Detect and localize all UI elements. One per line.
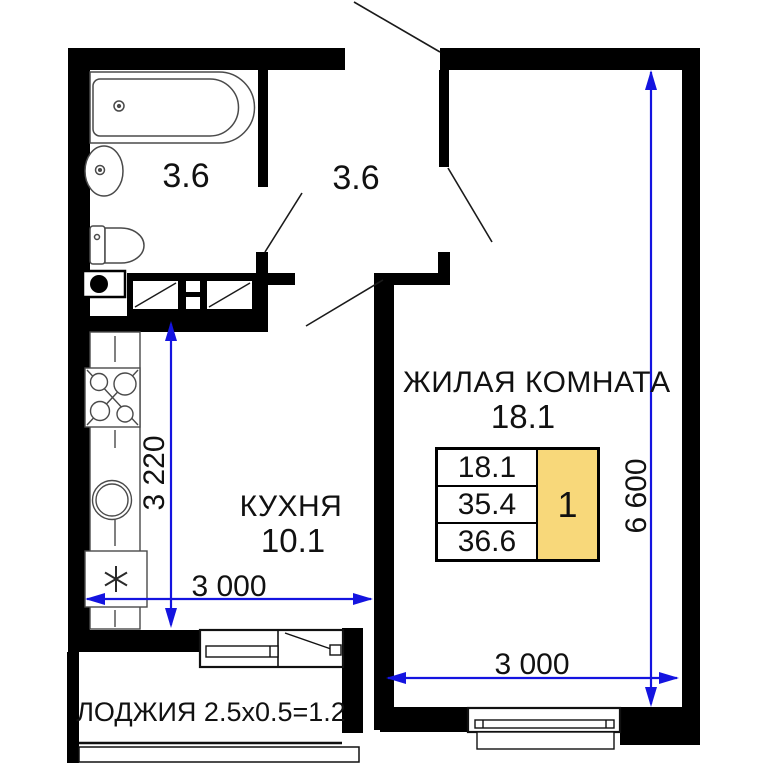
vent-shafts-icon xyxy=(133,281,252,309)
entrance-door-swing xyxy=(354,2,440,52)
kitchen-door-swing xyxy=(306,280,383,326)
total-area-cell: 36.6 xyxy=(438,524,536,559)
stove-icon xyxy=(85,368,140,427)
living-window xyxy=(468,708,620,749)
floor-plan: 3.6 3.6 ЖИЛАЯ КОМНАТА 18.1 КУХНЯ 10.1 ЛО… xyxy=(0,0,768,768)
dim-living-width: 3 000 xyxy=(462,648,602,678)
dim-kitchen-width: 3 000 xyxy=(159,570,299,600)
dim-kitchen-depth: 3 220 xyxy=(139,408,171,538)
kitchen-area-label: 10.1 xyxy=(233,522,353,556)
hallway-area-label: 3.6 xyxy=(316,159,396,199)
bathroom-door-swing xyxy=(265,193,302,252)
bathtub-icon xyxy=(90,72,255,143)
washbasin-icon xyxy=(85,146,123,196)
toilet-icon xyxy=(90,226,144,264)
balcony-door-window xyxy=(200,630,343,667)
living-room-name-label: ЖИЛАЯ КОМНАТА xyxy=(403,366,643,396)
loggia-label: ЛОДЖИЯ 2.5x0.5=1.2 xyxy=(71,697,351,727)
vent-box-icon xyxy=(83,271,125,297)
rooms-count-badge: 1 xyxy=(536,450,597,559)
bathroom-area-label: 3.6 xyxy=(146,157,226,197)
apartment-area-cell: 35.4 xyxy=(438,487,536,524)
area-values-column: 18.1 35.4 36.6 xyxy=(438,450,536,559)
living-room-area-label: 18.1 xyxy=(463,398,583,432)
kitchen-name-label: КУХНЯ xyxy=(221,490,361,520)
apartment-info-table: 18.1 35.4 36.6 1 xyxy=(435,447,600,562)
living-area-cell: 18.1 xyxy=(438,450,536,487)
living-door-swing xyxy=(448,168,492,242)
loggia-outline xyxy=(79,743,359,762)
dim-living-depth: 6 600 xyxy=(621,426,653,566)
